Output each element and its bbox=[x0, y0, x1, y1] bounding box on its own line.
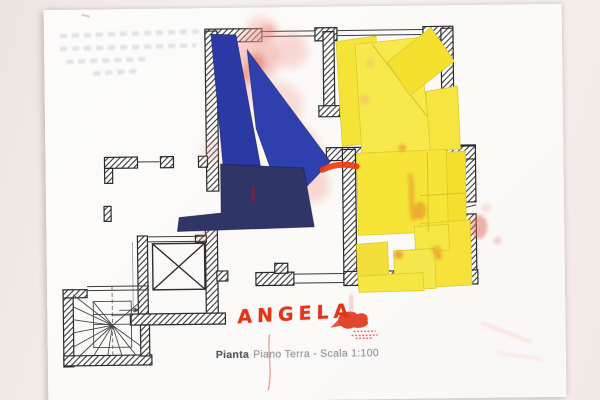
wall-segment bbox=[275, 263, 288, 273]
wall-segment bbox=[160, 157, 173, 168]
right-side-smudges bbox=[471, 202, 542, 360]
yellow-collage-piece bbox=[358, 273, 424, 293]
wall-segment bbox=[319, 106, 340, 117]
blue-collage bbox=[175, 33, 331, 232]
ghost-print-marks bbox=[60, 31, 203, 74]
paper-sheet: ANGELA PiantaPiano Terra - Scala 1:100 bbox=[44, 4, 567, 400]
wall-segment bbox=[130, 313, 225, 325]
stair-direction-arrow bbox=[119, 308, 139, 313]
dark-red-mark-on-navy bbox=[253, 187, 254, 202]
stamp-tiny-text-marks bbox=[352, 331, 378, 338]
wall-segment bbox=[137, 236, 148, 317]
thin-red-line bbox=[268, 334, 271, 390]
wall-segment bbox=[342, 149, 357, 285]
wall-segment bbox=[217, 271, 228, 281]
blue-collage-piece-bottom-navy bbox=[177, 163, 315, 232]
wall-segment bbox=[105, 168, 113, 183]
yellow-collage-piece bbox=[446, 151, 466, 229]
yellow-collage-upper-room bbox=[336, 27, 461, 165]
wall-segment bbox=[104, 157, 137, 168]
plan-caption-rest: Piano Terra - Scala 1:100 bbox=[253, 347, 379, 361]
wall-segment bbox=[140, 325, 149, 356]
floor-plan-drawing bbox=[44, 4, 567, 400]
yellow-collage-piece bbox=[426, 86, 461, 151]
paper-edge-notch bbox=[82, 15, 90, 17]
wall-segment bbox=[256, 272, 294, 285]
wall-segment bbox=[64, 355, 152, 366]
plan-caption-title-word: Pianta bbox=[216, 349, 249, 361]
wall-segment bbox=[104, 206, 111, 221]
wall-segment bbox=[323, 32, 335, 108]
elevator-x-box bbox=[152, 243, 205, 290]
photo-of-artwork: ANGELA PiantaPiano Terra - Scala 1:100 bbox=[0, 0, 600, 400]
